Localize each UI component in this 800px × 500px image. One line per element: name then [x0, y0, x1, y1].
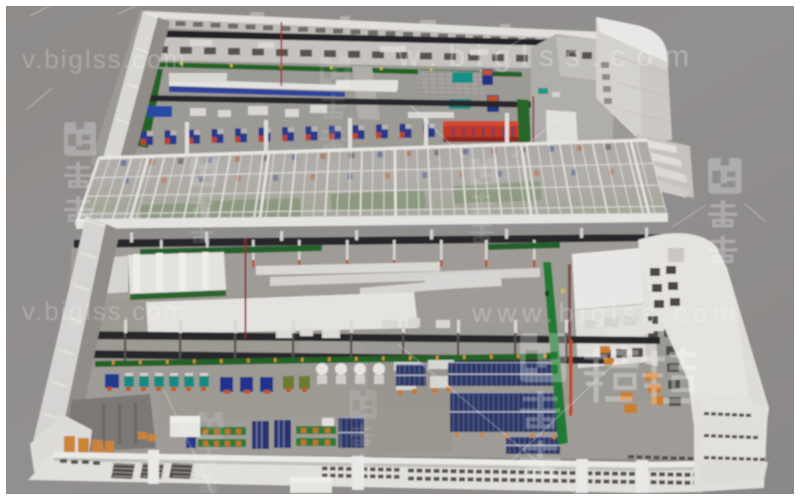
svg-text:www.biglss.com: www.biglss.com: [471, 298, 741, 328]
svg-text:v.biglss.com: v.biglss.com: [22, 44, 187, 74]
svg-text:v.biglss.com: v.biglss.com: [22, 296, 187, 326]
svg-text:w.biglss.com: w.biglss.com: [397, 40, 700, 73]
